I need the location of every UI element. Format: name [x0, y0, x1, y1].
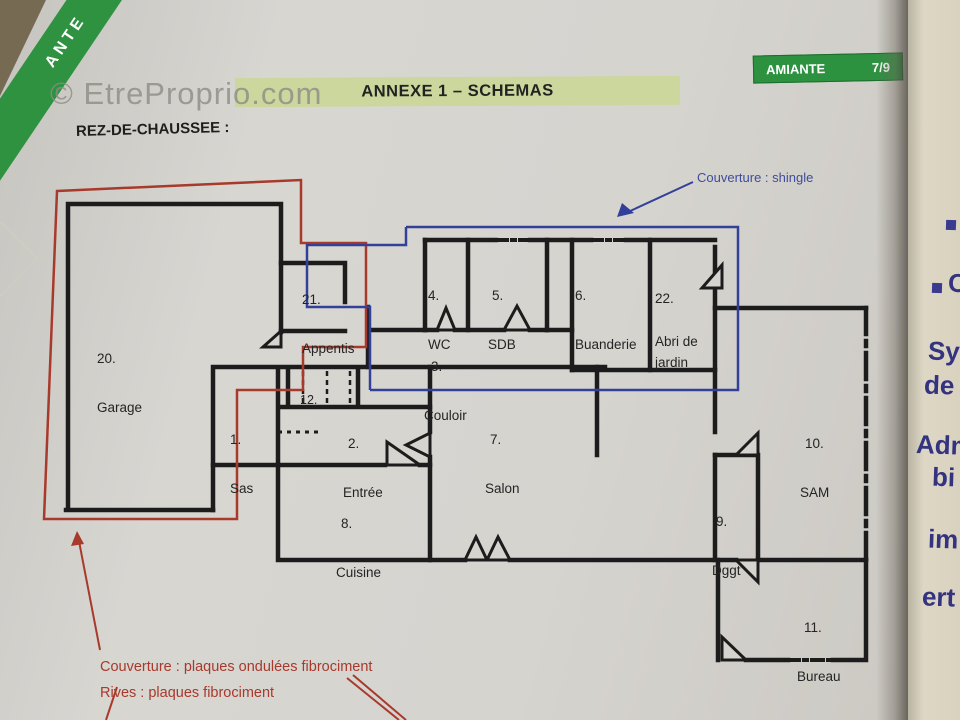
room-number: 9.: [712, 510, 741, 534]
room-number: 20.: [97, 347, 142, 371]
room-name: Couloir: [424, 404, 467, 428]
room-number: 21.: [302, 288, 355, 312]
room-label-wc: 4. WC: [428, 260, 451, 381]
annotation-shingle: Couverture : shingle: [697, 170, 813, 185]
room-label-garage: 20. Garage: [97, 323, 142, 444]
room-number: 11.: [797, 616, 841, 640]
next-page-fragment: C: [947, 268, 960, 300]
red-annotation-arrow: [78, 536, 100, 650]
room-name: Dggt: [712, 559, 741, 583]
next-page-fragment: de: [923, 369, 954, 401]
bullet-icon: [946, 220, 956, 230]
next-page-fragment: ert: [921, 581, 955, 613]
room-name: Buanderie: [575, 333, 637, 357]
room-label-cuisine: 8. Cuisine: [336, 488, 381, 609]
room-label-buanderie: 6. Buanderie: [575, 260, 637, 381]
room-label-bureau: 11. Bureau: [797, 592, 841, 713]
room-label-dggt: 9. Dggt: [712, 486, 741, 607]
room-number: 2.: [343, 432, 383, 456]
room-number: 5.: [488, 284, 516, 308]
page-title: ANNEXE 1 – SCHEMAS: [361, 81, 553, 101]
room-number: 1.: [230, 428, 253, 452]
room-number: 4.: [428, 284, 451, 308]
room-name: Sas: [230, 477, 253, 501]
room-number: 8.: [336, 512, 381, 536]
room-name: Appentis: [302, 337, 355, 361]
room-number: 6.: [575, 284, 637, 308]
annotation-roof-line1: Couverture : plaques ondulées fibrocimen…: [100, 659, 372, 675]
room-number: 12.: [300, 389, 317, 412]
room-name: SAM: [800, 481, 829, 505]
bullet-icon: [932, 283, 942, 293]
room-name: SDB: [488, 333, 516, 357]
room-number: 10.: [800, 432, 829, 456]
room-name: Abri de jardin: [655, 331, 698, 374]
red-arrowhead-icon: [71, 531, 84, 546]
next-page-fragment: Sy: [927, 335, 960, 367]
next-page-fragment: im: [927, 523, 958, 555]
badge-label: AMIANTE: [766, 61, 826, 77]
room-name: Cuisine: [336, 561, 381, 585]
annotation-roof-line2: Rives : plaques fibrociment: [100, 685, 274, 701]
room-label-sas: 1. Sas: [230, 404, 253, 525]
room-number: 7.: [485, 428, 520, 452]
room-name: Garage: [97, 396, 142, 420]
room-number: 22.: [655, 288, 698, 310]
room-label-sdb: 5. SDB: [488, 260, 516, 381]
watermark: © EtreProprio.com: [50, 76, 322, 112]
blue-annotation-arrow: [628, 182, 693, 212]
room-label-sam: 10. SAM: [800, 408, 829, 529]
room-name: WC: [428, 333, 451, 357]
room-name: Salon: [485, 477, 520, 501]
room-label-salon: 7. Salon: [485, 404, 520, 525]
room-label-abri-de-jardin: 22. Abri de jardin: [655, 266, 698, 396]
next-page-fragment: Adm: [915, 429, 960, 462]
room-name: Bureau: [797, 665, 841, 689]
next-page-fragment: bi: [931, 462, 955, 494]
page-edge-shadow: [876, 0, 910, 720]
room-label-12: 12.: [300, 366, 317, 434]
